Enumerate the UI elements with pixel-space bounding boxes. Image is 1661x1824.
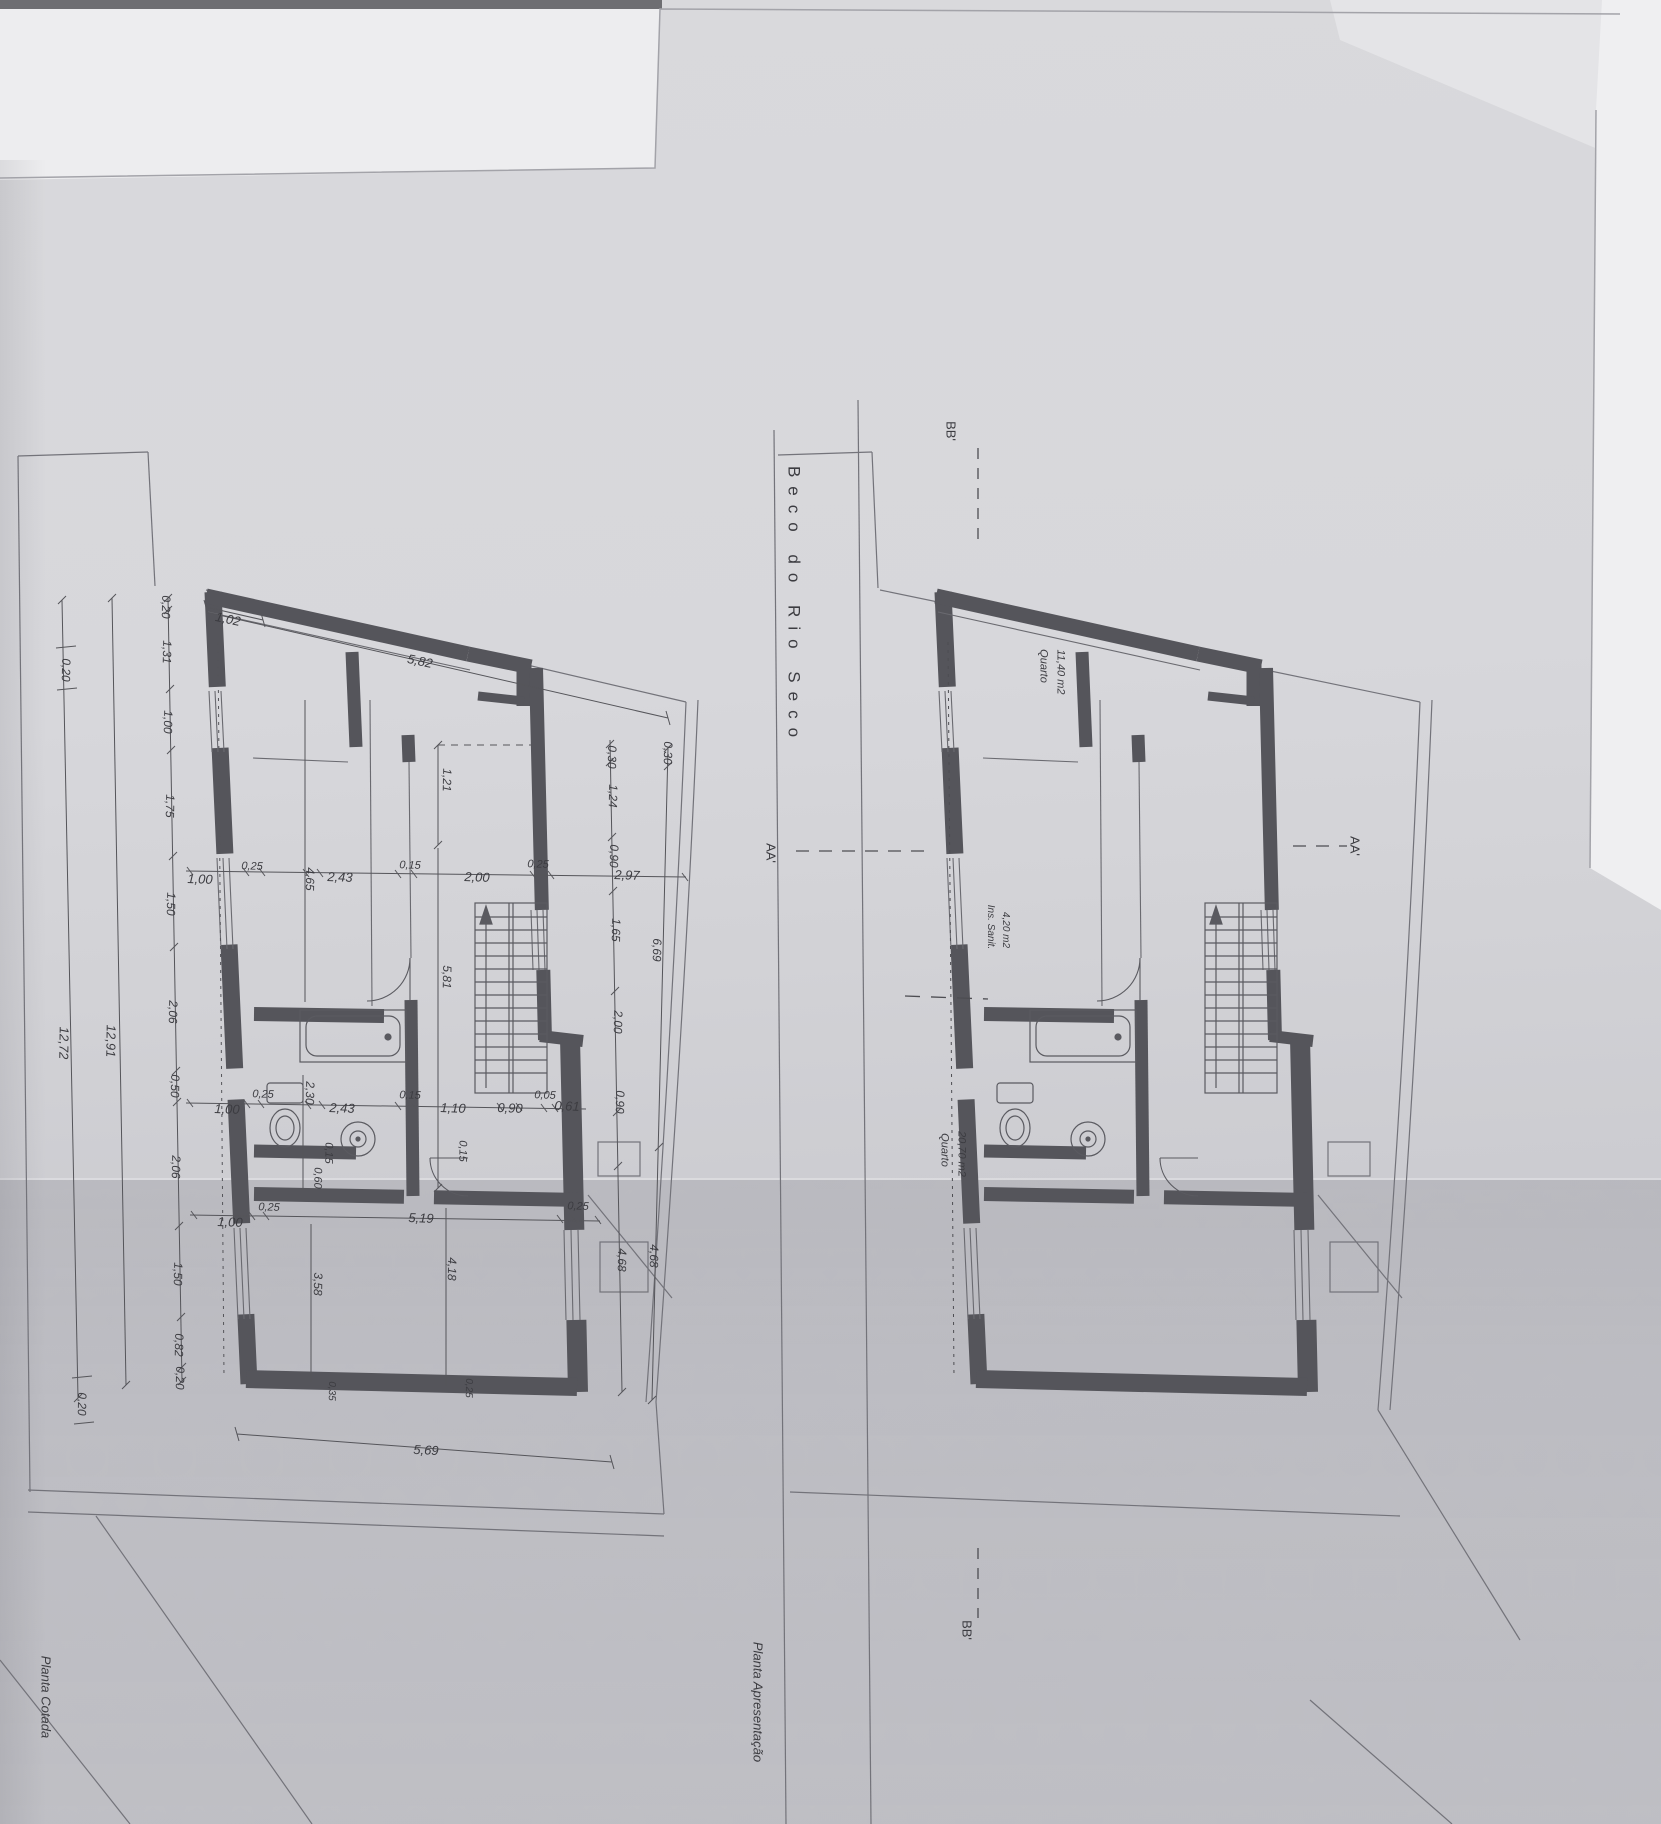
room3-name: Quarto xyxy=(939,1133,950,1167)
small-0-15b: 0,15 xyxy=(322,1142,333,1164)
chain-1-50b: 1,50 xyxy=(172,1262,184,1286)
row1-0-15: 0,15 xyxy=(399,860,421,872)
row2-0-05: 0,05 xyxy=(534,1090,556,1102)
dim-0-20-outer-top: 0,20 xyxy=(60,658,72,682)
dim-2-30: 2,30 xyxy=(304,1081,316,1105)
row1-2-97: 2,97 xyxy=(614,868,640,882)
room2-area: 4,20 m2 xyxy=(1000,912,1010,948)
small-0-60: 0,60 xyxy=(311,1167,322,1189)
dim-1-21: 1,21 xyxy=(441,768,453,792)
room1-area: 11,40 m2 xyxy=(1055,649,1066,694)
dim-12-72: 12,72 xyxy=(57,1027,71,1060)
row2-2-43: 2,43 xyxy=(329,1101,355,1115)
dim-5-69: 5,69 xyxy=(413,1443,439,1457)
dim-3-58: 3,58 xyxy=(312,1272,324,1296)
chain-1-50a: 1,50 xyxy=(165,892,177,916)
dim-5-82: 5,82 xyxy=(406,652,433,670)
rchain-2-00: 2,00 xyxy=(612,1010,624,1034)
dim-12-91: 12,91 xyxy=(104,1025,118,1058)
chain-0-50: 0,50 xyxy=(169,1074,181,1098)
rchain2-6-69: 6,69 xyxy=(651,938,663,962)
dim-1-02: 1,02 xyxy=(214,610,241,628)
dim-5-81: 5,81 xyxy=(441,965,453,989)
chain-1-00: 1,00 xyxy=(162,710,174,734)
row2-1-00: 1,00 xyxy=(214,1102,240,1116)
room3-area: 20,70 m2 xyxy=(956,1131,967,1177)
row3-5-19: 5,19 xyxy=(408,1211,434,1225)
right-plan-title: Planta Apresentação xyxy=(752,1642,765,1762)
row2-0-90: 0,90 xyxy=(497,1101,523,1115)
chain-0-82: 0,82 xyxy=(173,1333,185,1357)
chain-0-20b: 0,20 xyxy=(174,1366,186,1390)
row1-4-65: 4,65 xyxy=(304,867,316,891)
mark-0-25: 0,25 xyxy=(463,1378,473,1398)
mark-0-35: 0,35 xyxy=(326,1381,336,1401)
street-name: Beco do Rio Seco xyxy=(786,466,803,746)
section-aa-left: AA' xyxy=(765,843,778,863)
rchain-1-24: 1,24 xyxy=(607,784,619,808)
dim-4-18: 4,18 xyxy=(446,1257,458,1281)
row3-1-00: 1,00 xyxy=(217,1215,243,1229)
section-bb-top: BB' xyxy=(945,421,958,441)
rchain-4-68a: 4,68 xyxy=(616,1248,628,1272)
row3-0-25b: 0,25 xyxy=(567,1201,589,1213)
row2-0-25: 0,25 xyxy=(252,1089,274,1101)
rchain2-0-30: 0,30 xyxy=(662,741,674,765)
row2-0-15: 0,15 xyxy=(399,1090,421,1102)
row2-1-10: 1,10 xyxy=(440,1101,466,1115)
chain-1-31: 1,31 xyxy=(161,640,173,664)
dim-0-20-outer-bottom: 0,20 xyxy=(76,1392,88,1416)
left-plan-title: Planta Cotada xyxy=(40,1656,53,1738)
room1-name: Quarto xyxy=(1038,649,1049,683)
row1-0-25b: 0,25 xyxy=(527,859,549,871)
rchain-0-30: 0,30 xyxy=(606,745,618,769)
row1-2-43: 2,43 xyxy=(327,870,353,884)
row3-0-25a: 0,25 xyxy=(258,1202,280,1214)
room2-name: Ins. Sanit. xyxy=(985,905,995,949)
row1-1-00: 1,00 xyxy=(187,872,213,886)
chain-0-20a: 0,20 xyxy=(160,595,172,619)
rchain-0-90b: 0,90 xyxy=(614,1090,626,1114)
small-0-15a: 0,15 xyxy=(456,1140,467,1162)
row1-2-00: 2,00 xyxy=(464,870,490,884)
rchain2-4-68b: 4,68 xyxy=(648,1244,660,1268)
row2-0-61: 0,61 xyxy=(554,1099,580,1113)
chain-2-06a: 2,06 xyxy=(167,1000,179,1024)
rchain-1-65: 1,65 xyxy=(610,918,622,942)
chain-1-75: 1,75 xyxy=(164,794,176,818)
section-bb-bottom: BB' xyxy=(961,1620,974,1640)
section-aa-right: AA' xyxy=(1349,836,1362,856)
rchain-0-90a: 0,90 xyxy=(608,844,620,868)
annotation-labels: 1,025,820,201,311,001,751,502,060,502,06… xyxy=(0,0,1661,1824)
chain-2-06b: 2,06 xyxy=(170,1155,182,1179)
row1-0-25a: 0,25 xyxy=(241,861,263,873)
photographed-floor-plan-sheet: 1,025,820,201,311,001,751,502,060,502,06… xyxy=(0,0,1661,1824)
